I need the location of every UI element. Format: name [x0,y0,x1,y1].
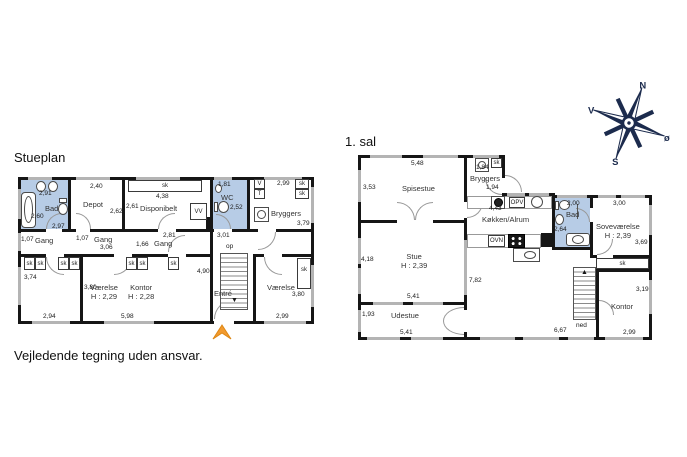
window [18,267,21,305]
wall [596,269,652,272]
v-label: V [257,181,261,187]
ceiling-height: H : 2,29 [90,292,118,301]
dim-label: 5,41 [407,293,420,300]
room-name-entre: Entré [214,289,232,298]
dim-label: 2,91 [39,190,52,197]
water-heater-box: VV [190,203,207,220]
opv-label: OPV [511,200,524,206]
wall [232,229,258,232]
sk-label: sk [299,181,305,187]
wall [464,305,467,310]
dim-label: 3,74 [24,274,37,281]
window [649,205,652,235]
stairs-down-label: ned [576,322,587,329]
dim-label: 3,19 [636,286,649,293]
dim-label: 2,52 [230,204,243,211]
compass-rose-icon: N ø S V [586,80,672,166]
wall [68,180,71,232]
sk-label: sk [72,261,78,267]
ceiling-height: H : 2,28 [128,292,154,301]
stair-direction-arrow: ▼ [231,297,238,304]
dim-label: 5,41 [400,329,413,336]
wall [433,220,467,223]
dim-label: 3,69 [635,239,648,246]
room-name-gang: Gang [94,235,112,244]
wall [464,332,467,337]
room-name-text: Kontor [128,283,154,292]
dim-label: 2,99 [623,329,636,336]
wall [21,229,46,232]
double-door-arc [443,321,464,335]
window [264,321,306,324]
dim-label: 3,00 [613,200,626,207]
stueplan-drawing: sk VV V T sk sk sk sk sk sk sk sk sk sk … [18,177,314,324]
sink-basin-icon [524,251,536,259]
sk-label: sk [620,261,626,267]
room-name-gang: Gang [35,236,53,245]
compass-west-label: V [588,106,595,117]
dim-label: 4,18 [361,256,374,263]
room-name-bad: Bad [45,204,58,213]
window [557,195,587,198]
window [358,170,361,202]
vv-label: VV [194,209,202,215]
wall-stub [541,233,552,247]
window [370,155,402,158]
first-floor-title: 1. sal [345,134,376,149]
door-arc [597,239,613,255]
disclaimer-text: Vejledende tegning uden ansvar. [14,348,203,363]
room-name-text: Stue [401,252,427,261]
dim-label: 1,66 [136,241,149,248]
dim-label: 5,48 [411,160,424,167]
room-name-stue: StueH : 2,39 [401,252,427,270]
dim-label: 1,07 [21,236,34,243]
room-name-disponibelt: Disponibelt [140,204,177,213]
wall [358,220,397,223]
dim-label: 3,80 [292,291,305,298]
window [464,240,467,295]
sk-label: sk [140,261,146,267]
sk-label: sk [129,261,135,267]
closet-box: sk [168,257,179,270]
sk-label: sk [301,267,307,273]
room-name-text: Soveværelse [596,222,640,231]
dim-label: 2,62 [110,208,123,215]
dim-label: 2,99 [277,180,290,187]
ceiling-height: H : 2,39 [596,231,640,240]
dim-label: 4,90 [197,268,210,275]
window [311,187,314,223]
closet-box: sk [128,180,202,192]
dim-label: 2,40 [90,183,103,190]
wall [176,229,214,232]
window [311,265,314,307]
sk-label: sk [61,261,67,267]
t-label: T [258,191,262,197]
door-arc [505,175,522,192]
dim-label: 1,84 [476,164,489,171]
window [413,302,443,305]
dim-label: 2,97 [52,223,65,230]
closet-label: sk [162,183,168,189]
window [649,280,652,314]
ovn-label: OVN [490,238,503,244]
wall [552,247,593,250]
wall [90,229,158,232]
sk-label: sk [38,261,44,267]
stueplan-title: Stueplan [14,150,65,165]
room-name-koekken: Køkken/Alrum [482,215,529,224]
closet-box: T [254,189,265,199]
toilet-icon [58,203,68,215]
dim-label: 2,60 [31,213,44,220]
sk-label: sk [171,261,177,267]
double-door-arc [415,202,433,220]
dim-label: 5,98 [121,313,134,320]
dim-label: 2,99 [276,313,289,320]
dim-label: 3,79 [297,220,310,227]
closet-box: sk [69,257,80,270]
shower-basin [572,235,584,244]
double-door-arc [397,202,415,220]
stove-icon [508,234,525,248]
room-name-kontor: Kontor [611,302,633,311]
dim-label: 3,80 [84,284,97,291]
wall [122,180,125,232]
closet-box: sk [295,189,309,199]
dim-label: 3,53 [363,184,376,191]
sink-icon [555,214,564,225]
wall [80,257,83,321]
window [598,195,616,198]
compass-north-label: N [639,81,646,92]
room-name-kontor: KontorH : 2,28 [128,283,154,301]
closet-box: sk [35,257,46,270]
dim-label: 2,61 [126,203,139,210]
wall [253,254,264,257]
window [76,177,110,180]
sk-label: sk [299,191,305,197]
window [104,321,154,324]
wall [186,254,210,257]
wall [276,229,311,232]
window [621,195,645,198]
dim-label: 1,07 [76,235,89,242]
dim-label: 1,94 [486,184,499,191]
closet-box: sk [295,179,309,189]
window [523,337,559,340]
closet-box: sk [137,257,148,270]
dim-label: 3,06 [100,244,113,251]
room-name-vaerelse: Værelse [267,283,295,292]
double-door-arc [443,307,464,321]
toilet-icon [218,201,229,213]
window [423,155,458,158]
dim-label: 2,64 [554,226,567,233]
room-name-sovevaerelse: SoveværelseH : 2,39 [596,222,640,240]
compass-south-label: S [612,157,618,166]
entrance-arrow-icon [211,323,233,340]
oven-box: OVN [488,235,505,247]
sk-label: sk [494,160,500,166]
dim-label: 3,01 [217,232,230,239]
sk-label: sk [27,261,33,267]
dim-label: 6,67 [554,327,567,334]
window [568,337,594,340]
washing-machine-drum [257,210,266,219]
room-name-bad: Bad [566,210,579,219]
first-floor-drawing: sk OPV OVN sk ▲ 5,48 3,53 Spisestue 1,84… [355,150,655,342]
door-opening [590,208,593,222]
window [28,177,52,180]
window [605,337,643,340]
window [480,337,515,340]
room-name-bryggers: Bryggers [271,209,301,218]
closet-box: sk [58,257,69,270]
dishwasher-box: OPV [509,197,525,208]
kitchen-sink-icon [531,196,543,208]
window [358,268,361,294]
room-name-depot: Depot [83,200,103,209]
room-name-gang: Gang [154,239,172,248]
wall [253,254,256,321]
stairs-up-label: op [226,243,233,250]
window [214,177,232,180]
window [358,310,361,332]
room-name-bryggers: Bryggers [470,174,500,183]
closet-box: sk [596,258,649,269]
room-name-wc: WC [221,193,234,202]
compass-east-label: ø [664,133,670,144]
window [32,321,70,324]
stair-direction-arrow: ▲ [581,269,588,276]
ceiling-height: H : 2,39 [401,261,427,270]
dim-label: 2,94 [43,313,56,320]
wall [464,155,467,202]
window [411,337,443,340]
wall [282,254,311,257]
wall [210,232,213,321]
floorplan-page: Stueplan 1. sal Vejledende tegning uden … [0,0,687,457]
room-name-spisestue: Spisestue [402,184,435,193]
dim-label: 7,82 [469,277,482,284]
dim-label: 4,43 [489,205,502,212]
room-name-udestue: Udestue [391,311,419,320]
window [367,337,400,340]
wall [247,180,250,232]
closet-box: sk [126,257,137,270]
dim-label: 1,81 [218,181,231,188]
window [373,302,403,305]
dim-label: 1,93 [362,311,375,318]
dim-label: 4,38 [156,193,169,200]
closet-box: sk [491,158,502,168]
closet-box: sk [24,257,35,270]
dim-label: 2,00 [567,200,580,207]
closet-box: V [254,179,265,189]
closet-box: sk [297,258,311,289]
